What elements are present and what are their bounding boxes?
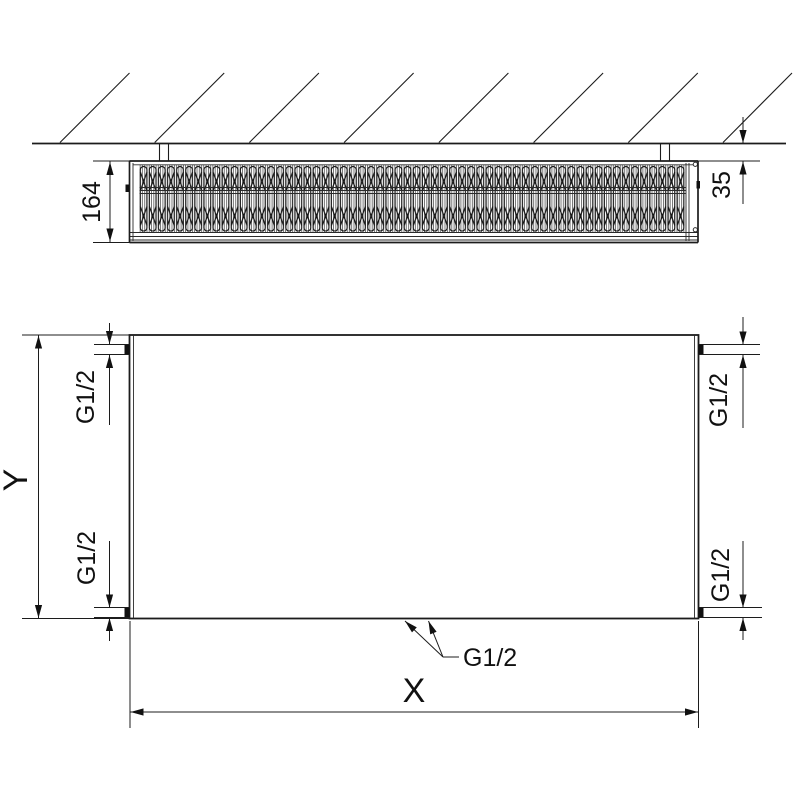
g12-label-top-right: G1/2 (705, 373, 733, 427)
connection-stub-bottom-right (699, 608, 704, 618)
g12-label-top-left: G1/2 (72, 370, 100, 424)
depth-dimension-label: 164 (78, 181, 106, 223)
g12-label-bottom-right: G1/2 (707, 548, 735, 602)
g12-label-bottom-center: G1/2 (463, 644, 517, 672)
width-dimension-label: X (403, 672, 426, 710)
connection-stub-bottom-left (125, 608, 130, 618)
side-connection-right (697, 181, 701, 189)
radiator-front-outline (130, 335, 699, 619)
end-cap-screw-bottom (693, 228, 697, 232)
height-dimension-label: Y (0, 469, 35, 492)
end-cap-screw-top (693, 162, 697, 166)
side-connection-left (126, 185, 130, 193)
g12-label-bottom-left: G1/2 (73, 531, 101, 585)
radiator-technical-drawing: 164 35 G1/2 (0, 0, 800, 800)
convector-fin-pattern (140, 165, 686, 233)
wall-gap-dimension-label: 35 (708, 171, 736, 199)
connection-stub-top-right (699, 345, 704, 355)
drawing-canvas: 164 35 G1/2 (0, 0, 800, 800)
connection-stub-top-left (125, 345, 130, 355)
radiator-cross-section (126, 161, 701, 243)
